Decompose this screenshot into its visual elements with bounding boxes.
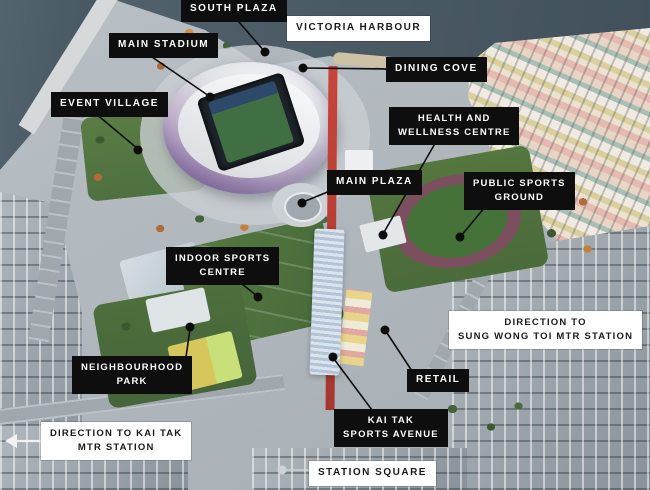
leader-dot (278, 466, 287, 475)
label-line: WELLNESS CENTRE (398, 126, 510, 140)
leader-line (186, 329, 190, 357)
left-arrow-icon (5, 434, 42, 448)
label-line: PUBLIC SPORTS (473, 177, 566, 191)
leader-dot (379, 231, 388, 240)
label-direction-sung-wong-toi-mtr: DIRECTION TO SUNG WONG TOI MTR STATION (449, 311, 642, 349)
leader-line (95, 113, 138, 149)
label-line: HEALTH AND (398, 112, 510, 126)
leader-dot (381, 326, 390, 335)
label-public-sports-ground: PUBLIC SPORTS GROUND (464, 172, 575, 210)
label-line: SPORTS AVENUE (343, 428, 439, 442)
leader-dot (298, 199, 307, 208)
label-line: NEIGHBOURHOOD (81, 361, 183, 375)
leader-dot (134, 146, 143, 155)
label-line: GROUND (473, 191, 566, 205)
label-line: DIRECTION TO (458, 316, 633, 330)
label-line: SUNG WONG TOI MTR STATION (458, 330, 633, 344)
label-kai-tak-sports-avenue: KAI TAK SPORTS AVENUE (334, 409, 448, 447)
label-line: CENTRE (175, 266, 270, 280)
label-line: PARK (81, 375, 183, 389)
label-line: MTR STATION (50, 441, 182, 455)
leader-lines (0, 0, 650, 490)
kai-tak-sports-park-map: SOUTH PLAZA VICTORIA HARBOUR MAIN STADIU… (0, 0, 650, 490)
label-line: KAI TAK (343, 414, 439, 428)
leader-line (152, 57, 209, 96)
label-dining-cove: DINING COVE (386, 57, 487, 82)
arrow-head (5, 434, 17, 448)
leader-line (303, 191, 330, 202)
leader-dot (186, 323, 195, 332)
label-direction-kai-tak-mtr: DIRECTION TO KAI TAK MTR STATION (41, 422, 191, 460)
leader-dot (299, 64, 308, 73)
leader-dot (456, 233, 465, 242)
leader-dot (254, 293, 263, 302)
station-square-leader (278, 466, 310, 475)
label-main-plaza: MAIN PLAZA (327, 170, 422, 195)
leader-line (305, 68, 386, 69)
label-station-square: STATION SQUARE (309, 461, 436, 486)
leader-line (387, 333, 412, 371)
leader-dot (206, 93, 215, 102)
label-neighbourhood-park: NEIGHBOURHOOD PARK (72, 356, 192, 394)
leader-line (461, 207, 485, 236)
label-south-plaza: SOUTH PLAZA (181, 0, 287, 22)
leader-dot (329, 353, 338, 362)
leader-dot (261, 48, 270, 57)
label-line: INDOOR SPORTS (175, 252, 270, 266)
label-victoria-harbour: VICTORIA HARBOUR (287, 16, 430, 41)
label-indoor-sports-centre: INDOOR SPORTS CENTRE (166, 247, 279, 285)
label-line: DIRECTION TO KAI TAK (50, 427, 182, 441)
leader-dot-group (134, 48, 465, 362)
label-retail: RETAIL (407, 369, 469, 392)
label-health-and-wellness-centre: HEALTH AND WELLNESS CENTRE (389, 107, 519, 145)
label-main-stadium: MAIN STADIUM (109, 33, 218, 58)
leader-line (334, 359, 372, 410)
label-event-village: EVENT VILLAGE (51, 92, 168, 117)
